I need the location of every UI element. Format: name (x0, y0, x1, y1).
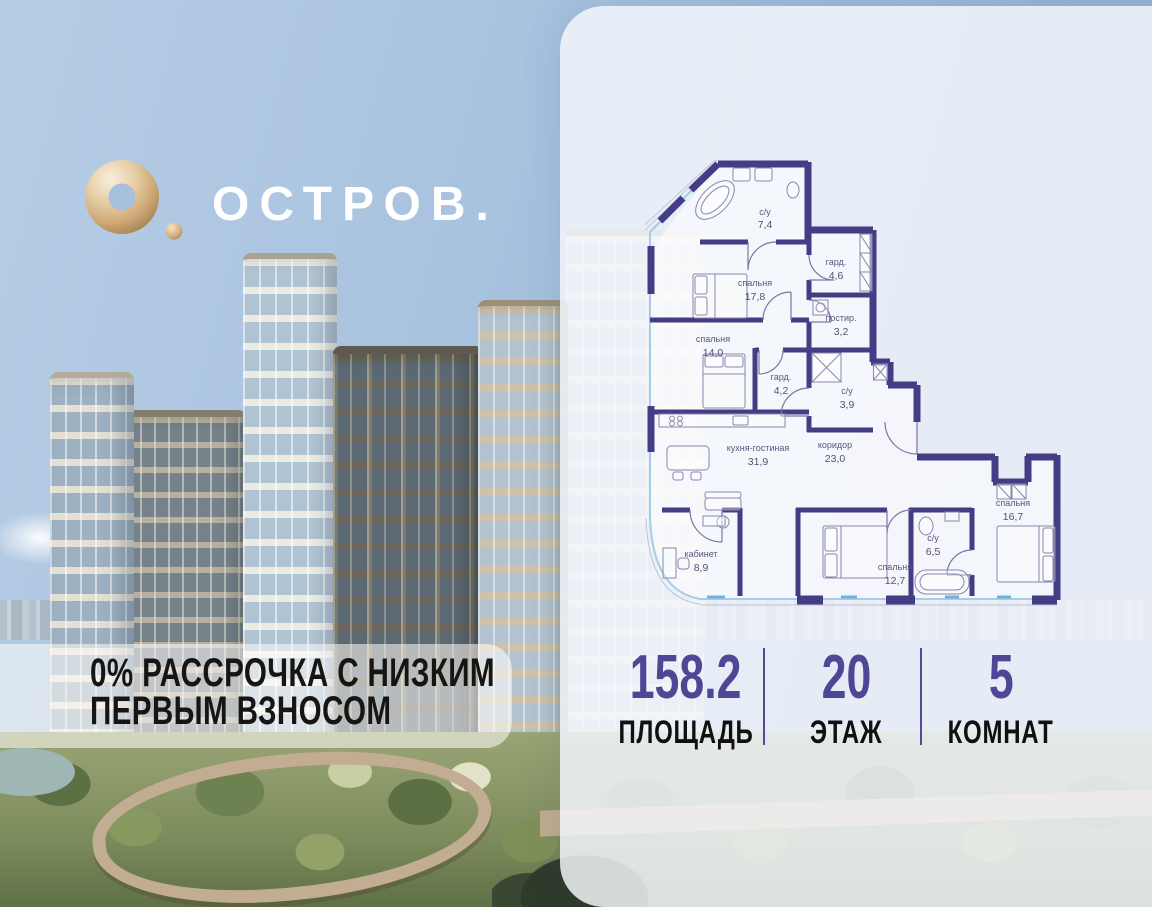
room-area: 3,2 (834, 326, 849, 338)
stat-floor-label: ЭТАЖ (810, 712, 882, 752)
stats-row: 158.2 ПЛОЩАДЬ 20 ЭТАЖ 5 КОМНАТ (560, 642, 1152, 762)
stat-rooms-value: 5 (989, 648, 1014, 708)
room-area: 4,6 (829, 270, 844, 282)
room-label: гард. (826, 257, 847, 267)
room-area: 3,9 (840, 399, 855, 411)
room-label: гард. (771, 372, 792, 382)
room-label: с/у (759, 207, 771, 217)
stat-rooms: 5 КОМНАТ (911, 648, 1091, 752)
room-label: спальня (738, 278, 772, 288)
room-area: 4,2 (774, 385, 789, 397)
room-area: 6,5 (926, 546, 941, 558)
stat-floor: 20 ЭТАЖ (756, 648, 936, 752)
room-label: постир. (825, 313, 856, 323)
info-panel: с/у 7,4 спальня 17,8 гард. 4,6 постир. 3… (560, 6, 1152, 907)
floor-plan: с/у 7,4 спальня 17,8 гард. 4,6 постир. 3… (645, 160, 1075, 630)
room-area: 8,9 (694, 562, 709, 574)
room-label: коридор (818, 440, 852, 450)
promo-line-1: 0% РАССРОЧКА С НИЗКИМ (90, 653, 495, 693)
room-label: спальня (696, 334, 730, 344)
stat-area-label: ПЛОЩАДЬ (618, 712, 753, 752)
room-area: 7,4 (758, 219, 773, 231)
room-area: 31,9 (748, 456, 769, 468)
room-area: 14,0 (703, 347, 724, 359)
room-label: спальня (878, 562, 912, 572)
room-area: 12,7 (885, 575, 906, 587)
logo-mark-icon (80, 156, 190, 256)
promo-line-2: ПЕРВЫМ ВЗНОСОМ (90, 691, 391, 731)
room-label: кухня-гостиная (727, 443, 790, 453)
room-label: с/у (841, 386, 853, 396)
logo-wordmark: ОСТРОВ. (212, 177, 499, 232)
promo-banner: 0% РАССРОЧКА С НИЗКИМ ПЕРВЫМ ВЗНОСОМ (0, 644, 512, 748)
room-label: кабинет (684, 549, 717, 559)
room-label: с/у (927, 533, 939, 543)
stat-floor-value: 20 (821, 648, 871, 708)
room-label: спальня (996, 498, 1030, 508)
room-area: 23,0 (825, 453, 846, 465)
room-area: 17,8 (745, 291, 766, 303)
flyer: ОСТРОВ. 0% РАССРОЧКА С НИЗКИМ ПЕРВЫМ ВЗН… (0, 0, 1152, 907)
room-area: 16,7 (1003, 511, 1024, 523)
stat-rooms-label: КОМНАТ (948, 712, 1054, 752)
logo: ОСТРОВ. (80, 156, 499, 256)
stat-area-value: 158.2 (630, 648, 742, 708)
